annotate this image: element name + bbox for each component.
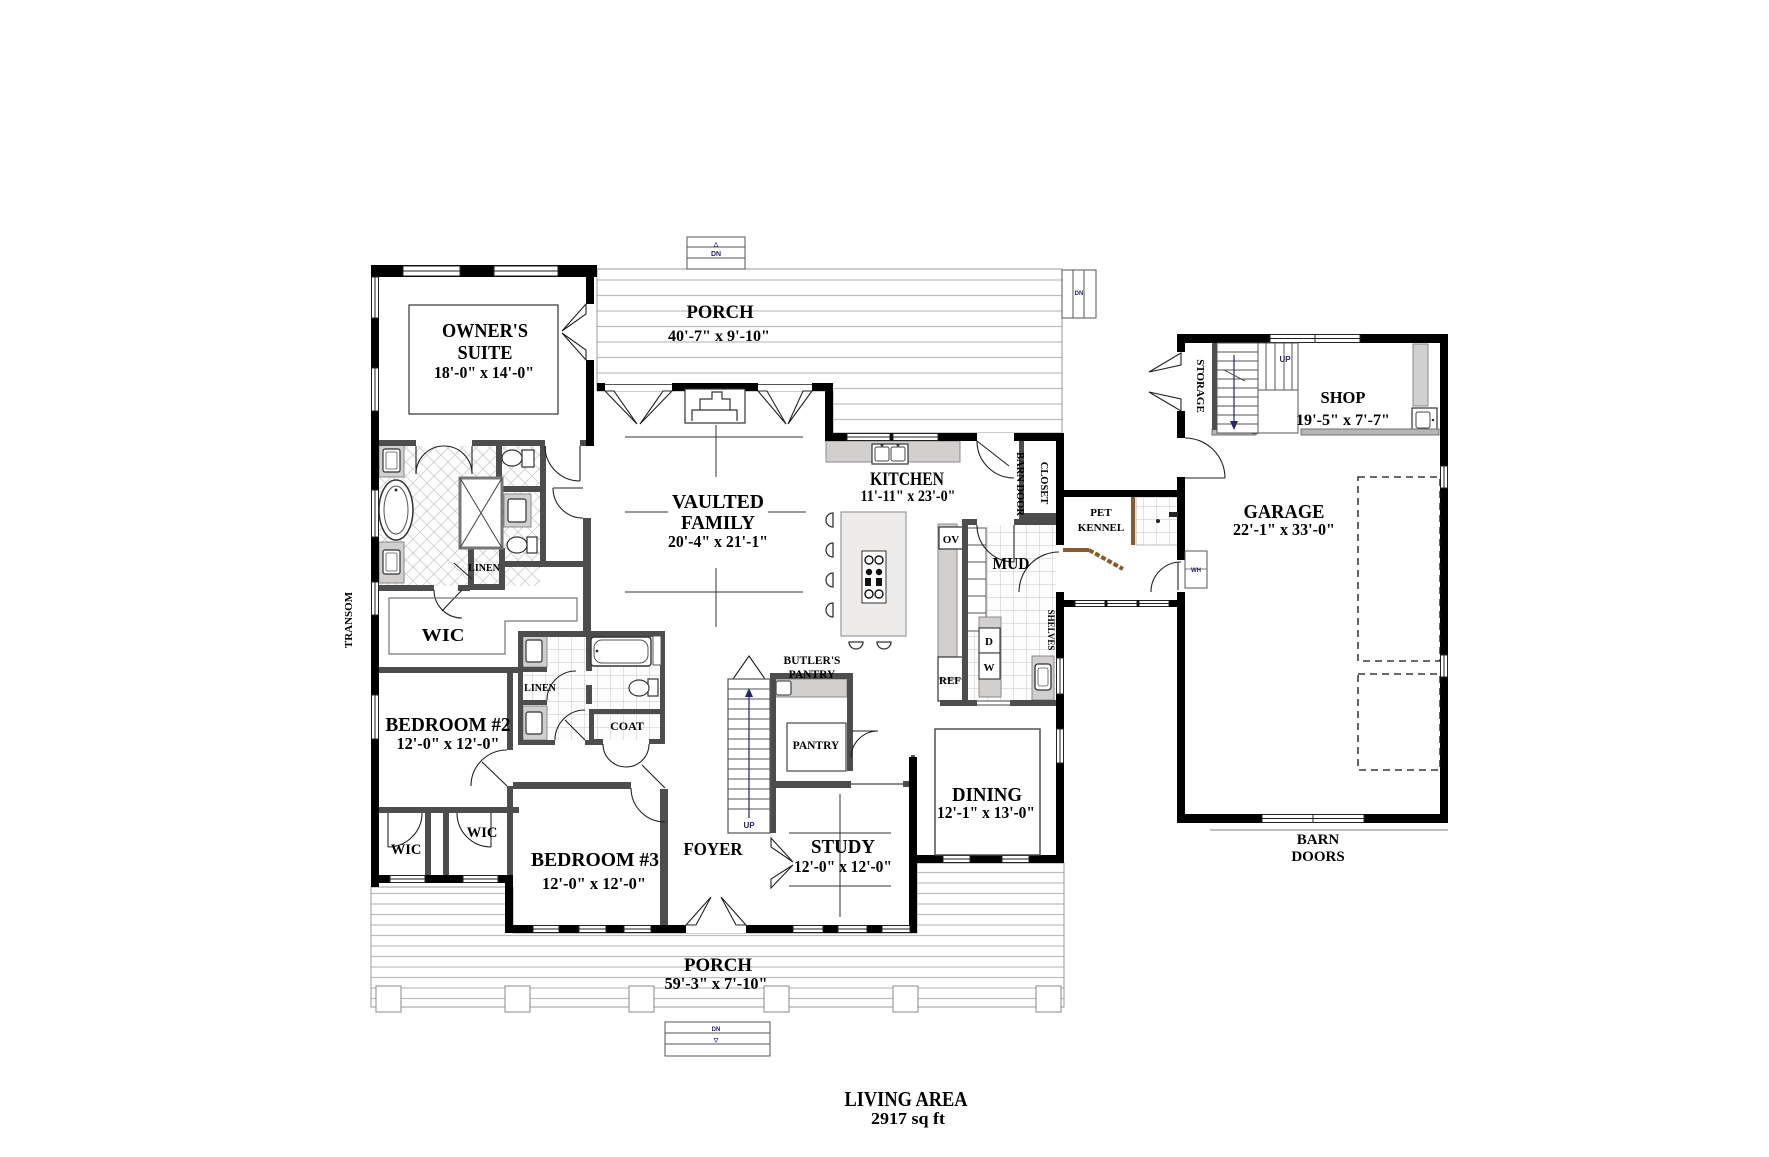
svg-text:WH: WH <box>1191 568 1201 574</box>
svg-text:2917 sq ft: 2917 sq ft <box>871 1109 945 1128</box>
svg-text:FOYER: FOYER <box>684 839 744 859</box>
svg-text:PANTRY: PANTRY <box>793 740 840 752</box>
svg-text:BARN DOOR: BARN DOOR <box>1014 452 1025 516</box>
svg-text:12'-0" x 12'-0": 12'-0" x 12'-0" <box>397 734 500 753</box>
svg-text:DN: DN <box>1075 291 1084 297</box>
svg-text:PET: PET <box>1090 507 1112 519</box>
svg-text:LINEN: LINEN <box>468 563 500 574</box>
svg-text:12'-0" x 12'-0": 12'-0" x 12'-0" <box>542 874 646 893</box>
svg-text:12'-1" x 13'-0": 12'-1" x 13'-0" <box>937 803 1035 822</box>
svg-text:59'-3" x 7'-10": 59'-3" x 7'-10" <box>665 974 768 993</box>
svg-text:BEDROOM #3: BEDROOM #3 <box>531 850 659 871</box>
svg-text:PORCH: PORCH <box>687 302 754 323</box>
svg-text:STORAGE: STORAGE <box>1194 359 1206 413</box>
svg-text:11'-11" x 23'-0": 11'-11" x 23'-0" <box>861 488 956 505</box>
svg-text:COAT: COAT <box>610 719 644 733</box>
svg-text:40'-7" x 9'-10": 40'-7" x 9'-10" <box>668 328 770 345</box>
svg-text:SHOP: SHOP <box>1321 388 1366 407</box>
svg-text:VAULTED: VAULTED <box>672 491 764 513</box>
svg-text:OV: OV <box>943 534 960 546</box>
svg-text:20'-4" x 21'-1": 20'-4" x 21'-1" <box>668 532 768 551</box>
svg-text:BUTLER'S: BUTLER'S <box>784 655 841 667</box>
svg-text:BARN: BARN <box>1297 832 1340 848</box>
svg-text:PORCH: PORCH <box>684 955 752 976</box>
svg-text:UP: UP <box>743 821 755 830</box>
svg-text:D: D <box>985 636 993 648</box>
svg-text:TRANSOM: TRANSOM <box>343 591 355 648</box>
svg-text:BEDROOM #2: BEDROOM #2 <box>386 715 511 736</box>
svg-text:FAMILY: FAMILY <box>681 512 755 534</box>
svg-text:WIC: WIC <box>422 625 465 645</box>
svg-text:18'-0" x 14'-0": 18'-0" x 14'-0" <box>434 363 534 382</box>
svg-text:MUD: MUD <box>993 554 1030 573</box>
svg-text:OWNER'S: OWNER'S <box>442 321 528 342</box>
svg-text:WIC: WIC <box>391 842 422 858</box>
svg-text:UP: UP <box>1279 355 1291 364</box>
svg-text:CLOSET: CLOSET <box>1038 462 1049 505</box>
svg-text:DN: DN <box>712 1027 721 1033</box>
svg-text:REF: REF <box>939 675 961 687</box>
svg-text:12'-0" x 12'-0": 12'-0" x 12'-0" <box>794 857 892 876</box>
svg-text:19'-5" x 7'-7": 19'-5" x 7'-7" <box>1296 412 1390 429</box>
svg-text:SHELVES: SHELVES <box>1046 610 1056 651</box>
svg-text:LIVING AREA: LIVING AREA <box>845 1087 968 1111</box>
svg-text:KENNEL: KENNEL <box>1078 522 1124 534</box>
svg-text:STUDY: STUDY <box>811 837 875 858</box>
svg-text:LINEN: LINEN <box>524 683 556 694</box>
svg-text:WIC: WIC <box>467 825 498 841</box>
svg-text:SUITE: SUITE <box>458 343 513 364</box>
svg-text:KITCHEN: KITCHEN <box>870 470 945 490</box>
svg-text:W: W <box>984 662 995 674</box>
svg-text:DN: DN <box>711 251 721 258</box>
svg-text:△: △ <box>713 241 719 248</box>
svg-text:▽: ▽ <box>713 1038 719 1044</box>
svg-text:PANTRY: PANTRY <box>789 669 836 681</box>
svg-text:22'-1" x 33'-0": 22'-1" x 33'-0" <box>1233 520 1335 539</box>
svg-text:DOORS: DOORS <box>1291 849 1344 865</box>
